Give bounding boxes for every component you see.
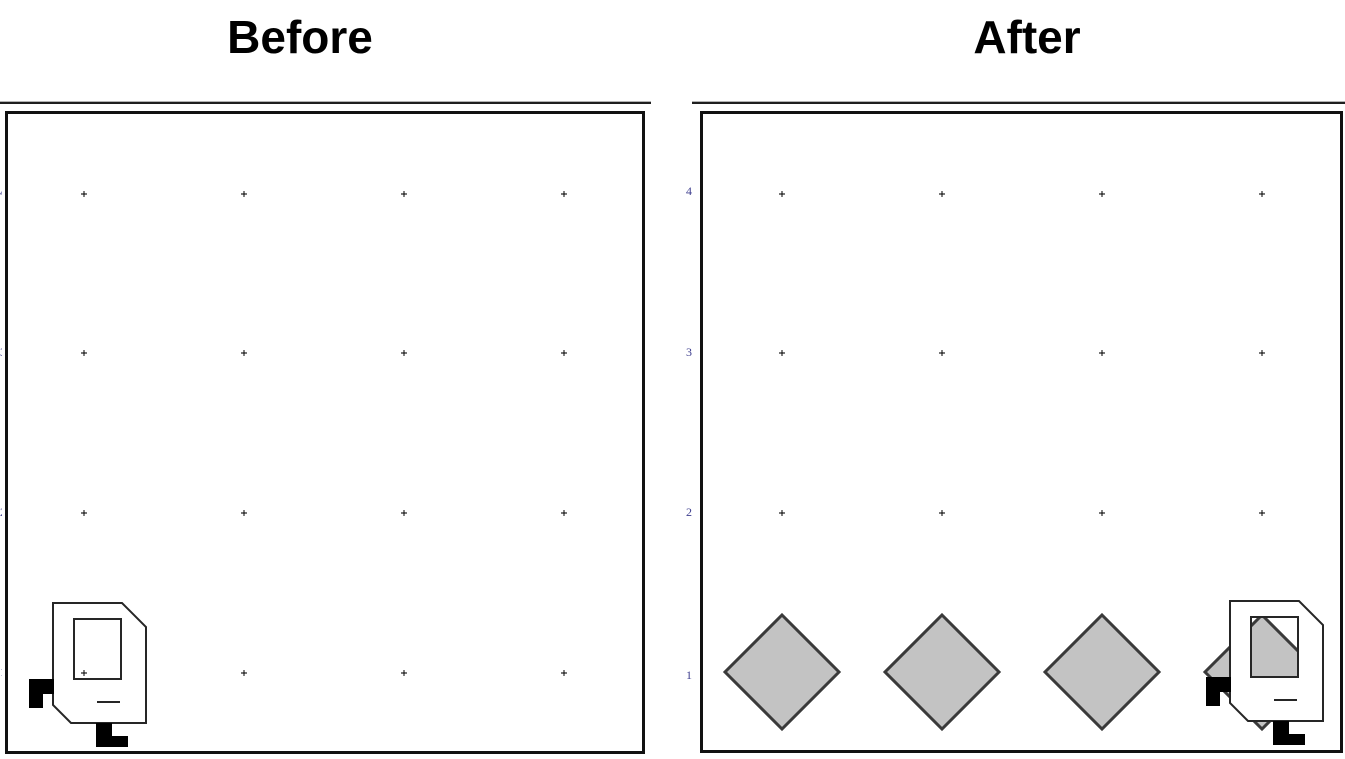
grid-dot-center: [1101, 193, 1102, 194]
grid-dot-center: [243, 193, 244, 194]
computer-bottom-foot: [1273, 721, 1305, 745]
grid-dot-center: [563, 352, 564, 353]
grid-dot-center: [1261, 352, 1262, 353]
grid-dot-center: [403, 193, 404, 194]
grid-dot-center: [243, 352, 244, 353]
diamond-shape: [1045, 615, 1159, 729]
computer-sprite-icon: [29, 603, 146, 747]
grid-dot-center: [243, 512, 244, 513]
grid-dot-center: [781, 193, 782, 194]
grid-dot-center: [83, 672, 84, 673]
grid-dot-center: [941, 352, 942, 353]
grid-dot-center: [941, 193, 942, 194]
grid-dot-center: [941, 512, 942, 513]
grid-dot-center: [403, 512, 404, 513]
grid-dot-center: [1261, 193, 1262, 194]
grid-dot-center: [1101, 512, 1102, 513]
computer-left-foot: [1206, 677, 1231, 706]
computer-left-foot: [29, 679, 54, 708]
grid-dot-center: [83, 352, 84, 353]
grid-dot-center: [83, 193, 84, 194]
grid-dot-center: [83, 512, 84, 513]
grid-dot-center: [781, 352, 782, 353]
grid-dot-center: [781, 512, 782, 513]
diamond-shape: [725, 615, 839, 729]
grid-dot-center: [563, 193, 564, 194]
computer-body-with-screen: [53, 603, 146, 723]
canvas-graphics: [0, 0, 1345, 759]
before-after-comparison: Before After 4321 4321: [0, 0, 1345, 759]
computer-bottom-foot: [96, 723, 128, 747]
grid-dot-center: [563, 512, 564, 513]
grid-dot-center: [243, 672, 244, 673]
grid-dot-center: [403, 352, 404, 353]
grid-dot-center: [1261, 512, 1262, 513]
grid-dot-center: [563, 672, 564, 673]
grid-dot-center: [1101, 352, 1102, 353]
diamond-shape: [885, 615, 999, 729]
grid-dot-center: [403, 672, 404, 673]
